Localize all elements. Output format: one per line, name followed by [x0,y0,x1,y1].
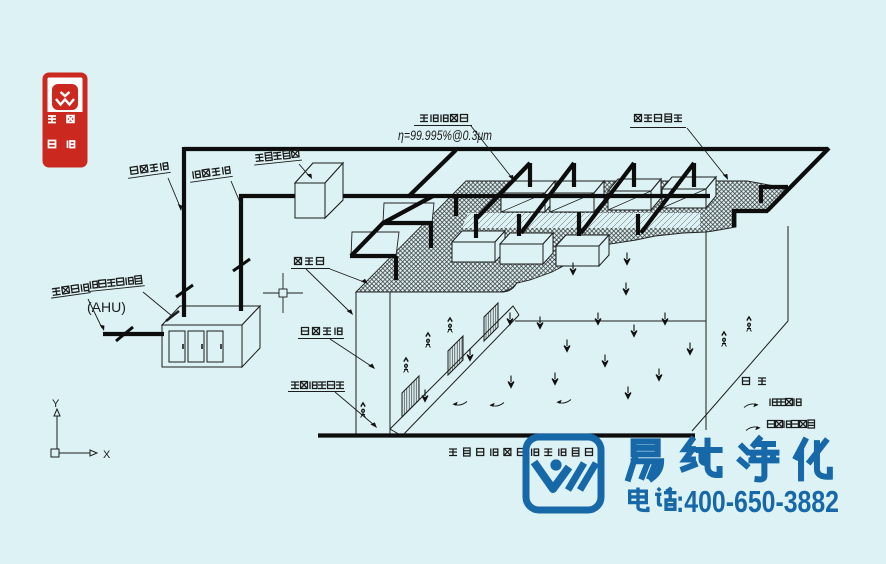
svg-text:X: X [103,449,111,461]
svg-text:(AHU): (AHU) [87,299,126,315]
svg-text:η=99.995%@0.3μm: η=99.995%@0.3μm [398,128,492,143]
svg-text::400-650-3882: :400-650-3882 [676,484,839,519]
svg-text:Y: Y [52,398,60,410]
